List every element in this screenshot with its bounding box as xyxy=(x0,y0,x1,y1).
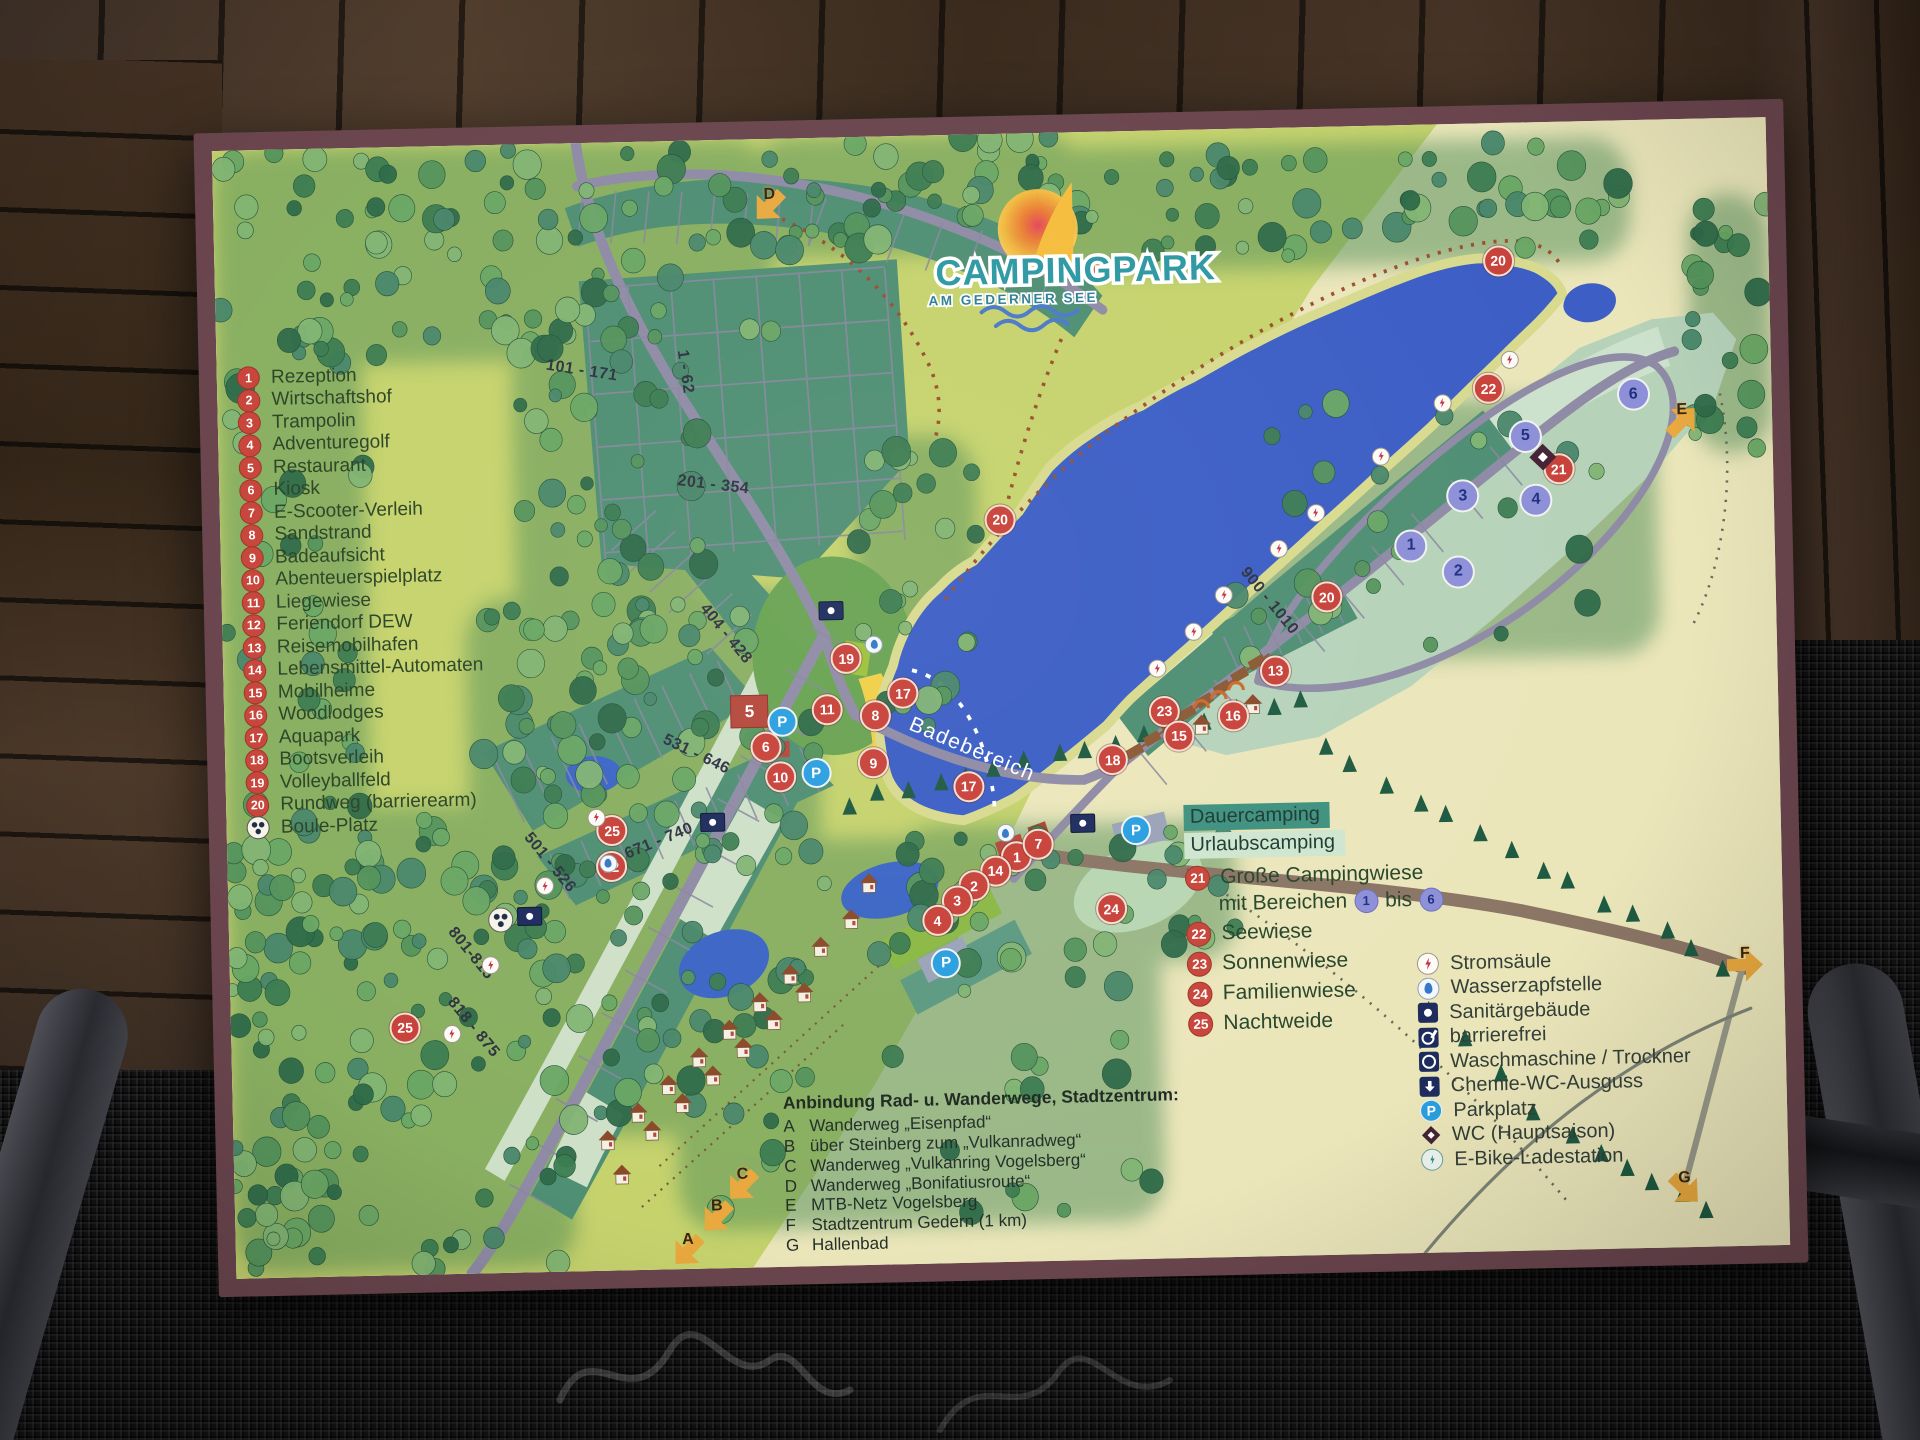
logo-title: CAMPINGPARK xyxy=(935,246,1216,293)
legend-number-badge: 12 xyxy=(242,614,265,637)
connection-key: C xyxy=(784,1156,810,1177)
area-chip-6: 6 xyxy=(1419,887,1444,912)
legend-item-label: Sandstrand xyxy=(274,522,372,546)
legend-item-label: Rundweg (barrierearm) xyxy=(280,790,477,816)
campingpark-logo: CAMPINGPARK AM GEDERNER SEE xyxy=(919,173,1232,340)
legend-number-badge: 7 xyxy=(240,501,263,524)
facility-label: barrierefrei xyxy=(1449,1023,1546,1048)
legend-item-label: Woodlodges xyxy=(278,702,384,726)
legend-number-badge: 15 xyxy=(244,681,267,704)
facility-icon xyxy=(1419,1027,1439,1047)
swatch-urlaubscamping: Urlaubscamping xyxy=(1184,829,1345,858)
legend-item-label: Abenteuerspielplatz xyxy=(275,565,442,591)
legend-item-label: Liegewiese xyxy=(276,590,372,614)
legend-facilities: Stromsäule Wasserzapfstelle Sanitärgebäu… xyxy=(1417,946,1693,1172)
legend-number-badge: 21 xyxy=(1185,865,1211,891)
legend-number-badge: 18 xyxy=(245,749,268,772)
facility-label: Parkplatz xyxy=(1453,1097,1537,1122)
facility-label: Stromsäule xyxy=(1450,950,1552,975)
connection-key: G xyxy=(786,1235,812,1256)
facility-label: Chemie-WC-Ausguss xyxy=(1451,1070,1644,1097)
legend-item-label: Seewiese xyxy=(1221,919,1313,945)
legend-item-label: Boule-Platz xyxy=(281,814,379,838)
legend-item-21-sub: mit Bereichen 1 bis 6 xyxy=(1219,885,1544,916)
legend-item-label: Mobilheime xyxy=(278,679,376,703)
legend-item-label: Sonnenwiese xyxy=(1222,949,1349,976)
legend-number-badge: 13 xyxy=(243,636,266,659)
legend-item-label: Aquapark xyxy=(279,725,361,749)
legend-numbered: 1 Rezeption 2 Wirtschaftshof 3 Trampolin xyxy=(237,362,487,840)
photo-scene: 101 - 1711 - 62201 - 354404 - 428531 - 6… xyxy=(0,0,1920,1440)
facility-icon xyxy=(1420,1076,1440,1096)
legend-number-badge: 1 xyxy=(237,366,260,389)
legend-number-badge xyxy=(247,816,270,839)
legend-item-label: Restaurant xyxy=(273,455,366,479)
facility-icon xyxy=(1420,1100,1442,1122)
legend-item-label: Nachtweide xyxy=(1223,1009,1333,1035)
legend-number-badge: 17 xyxy=(245,726,268,749)
connection-key: D xyxy=(784,1176,810,1197)
campground-map-poster: 101 - 1711 - 62201 - 354404 - 428531 - 6… xyxy=(193,99,1808,1297)
legend-item-label: Wirtschaftshof xyxy=(271,387,392,412)
facility-label: Sanitärgebäude xyxy=(1449,998,1591,1024)
legend-item-label: Familienwiese xyxy=(1222,978,1356,1005)
legend-item-label: Rezeption xyxy=(271,365,357,389)
facility-label: E-Bike-Ladestation xyxy=(1454,1144,1623,1171)
legend-item: 22 Seewiese xyxy=(1186,914,1544,947)
legend-number-badge: 14 xyxy=(243,659,266,682)
legend-item-label: Adventuregolf xyxy=(272,432,390,457)
connection-key: F xyxy=(785,1215,811,1236)
facility-label: WC (Hauptsaison) xyxy=(1452,1120,1616,1147)
legend-number-badge: 11 xyxy=(242,591,265,614)
connections-block: Anbindung Rad- u. Wanderwege, Stadtzentr… xyxy=(783,1084,1182,1255)
legend-number-badge: 6 xyxy=(239,479,262,502)
area-chip-1: 1 xyxy=(1354,888,1379,913)
legend-number-badge: 22 xyxy=(1186,921,1212,947)
map-paper: 101 - 1711 - 62201 - 354404 - 428531 - 6… xyxy=(212,117,1790,1279)
logo-subtitle: AM GEDERNER SEE xyxy=(928,290,1098,309)
legend-number-badge: 3 xyxy=(238,411,261,434)
connection-label: Hallenbad xyxy=(812,1234,889,1256)
legend-item-label: Feriendorf DEW xyxy=(276,611,413,636)
legend-number-badge: 25 xyxy=(1188,1011,1214,1037)
facility-icon xyxy=(1417,977,1439,999)
connection-key: A xyxy=(783,1116,809,1137)
waves-icon xyxy=(981,305,1078,331)
legend-number-badge: 10 xyxy=(241,569,264,592)
legend-number-badge: 23 xyxy=(1187,951,1213,977)
connection-key: E xyxy=(785,1196,811,1217)
legend-number-badge: 9 xyxy=(241,546,264,569)
legend-item-label: Bootsverleih xyxy=(279,747,384,771)
legend-number-badge: 4 xyxy=(238,434,261,457)
legend-item-label: Volleyballfeld xyxy=(280,769,391,793)
legend-item-label: Trampolin xyxy=(272,410,356,434)
facility-icon xyxy=(1417,953,1439,975)
legend-number-badge: 8 xyxy=(240,524,263,547)
facility-icon xyxy=(1418,1003,1438,1023)
swatch-dauercamping: Dauercamping xyxy=(1184,801,1331,830)
legend-item-label: E-Scooter-Verleih xyxy=(274,498,423,523)
legend-number-badge: 24 xyxy=(1187,981,1213,1007)
facility-icon xyxy=(1421,1149,1443,1171)
legend-number-badge: 16 xyxy=(244,704,267,727)
connection-key: B xyxy=(784,1136,810,1157)
legend-item-label: Kiosk xyxy=(273,478,320,501)
legend-number-badge: 19 xyxy=(246,771,269,794)
legend-item-label: Badeaufsicht xyxy=(275,544,385,568)
legend-number-badge: 20 xyxy=(246,794,269,817)
wood-deck-left xyxy=(0,60,222,1070)
legend-number-badge: 5 xyxy=(239,456,262,479)
legend-item-label: Reisemobilhafen xyxy=(277,634,419,659)
facility-icon xyxy=(1419,1052,1439,1072)
facility-label: Wasserzapfstelle xyxy=(1450,973,1602,999)
facility-icon xyxy=(1421,1125,1441,1145)
legend-item-label: Lebensmittel-Automaten xyxy=(277,655,483,681)
legend-number-badge: 2 xyxy=(237,389,260,412)
